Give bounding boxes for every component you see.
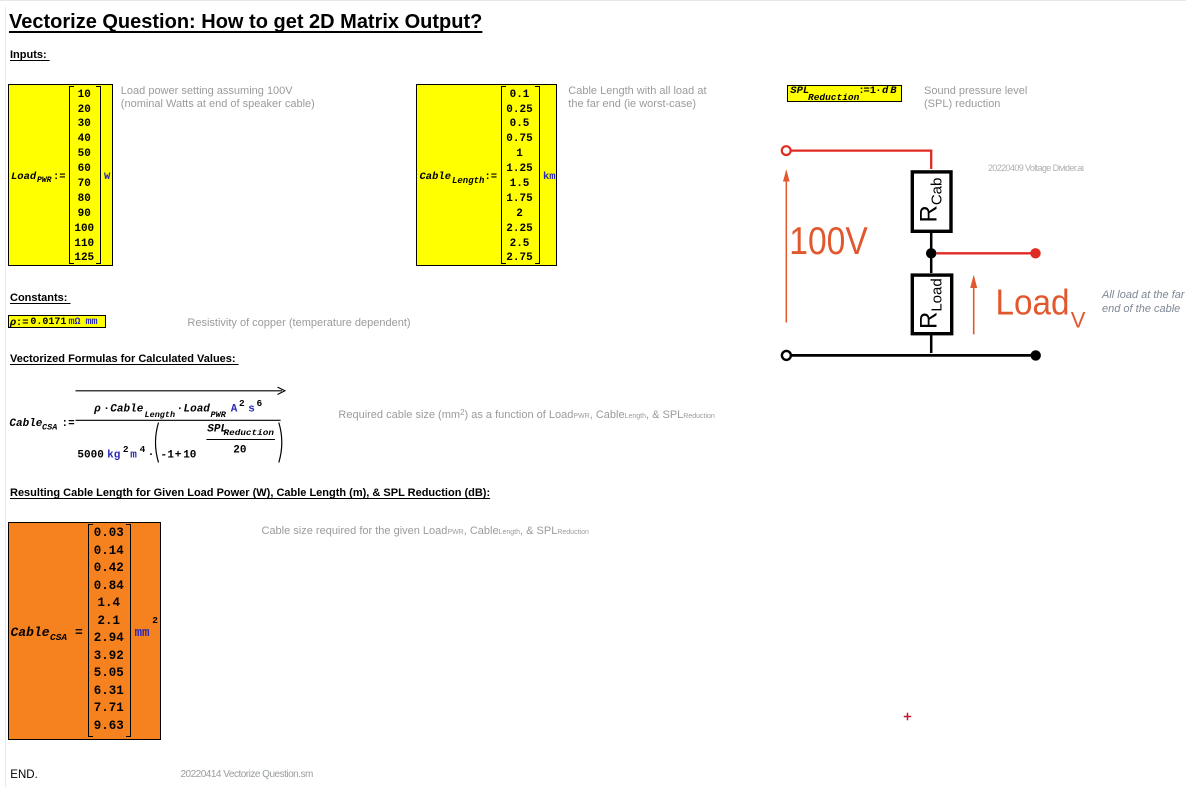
- svg-text:20: 20: [233, 445, 246, 457]
- svg-text:kg: kg: [107, 450, 120, 462]
- svg-text:2: 2: [239, 398, 245, 409]
- svg-text:·: ·: [177, 404, 184, 416]
- svg-text:·: ·: [148, 450, 155, 462]
- svg-text:·: ·: [103, 404, 110, 416]
- svg-text:10: 10: [183, 450, 196, 462]
- svg-text:Cable: Cable: [9, 418, 42, 430]
- svg-text:Cable: Cable: [110, 404, 143, 416]
- svg-text:m: m: [130, 450, 137, 462]
- svg-text:s: s: [248, 404, 255, 416]
- svg-text:4: 4: [140, 444, 146, 455]
- svg-text:2: 2: [123, 444, 129, 455]
- svg-text:V: V: [1071, 308, 1086, 333]
- svg-text:Reduction: Reduction: [224, 428, 275, 438]
- svg-text:20220409 Voltage Divider.ai: 20220409 Voltage Divider.ai: [988, 163, 1084, 173]
- svg-text:-: -: [161, 450, 168, 462]
- svg-text::=: :=: [62, 418, 76, 430]
- svg-text:Load: Load: [996, 281, 1070, 322]
- svg-text:PWR: PWR: [211, 410, 227, 420]
- svg-text:CSA: CSA: [42, 423, 57, 433]
- svg-text:100V: 100V: [789, 220, 868, 263]
- svg-text:A: A: [231, 404, 238, 416]
- svg-text:6: 6: [257, 398, 263, 409]
- svg-text:Load: Load: [184, 404, 211, 416]
- svg-text:+: +: [175, 450, 182, 462]
- svg-text:Length: Length: [145, 410, 176, 420]
- svg-text:ρ: ρ: [93, 404, 101, 416]
- svg-text:1: 1: [167, 450, 174, 462]
- svg-text:5000: 5000: [77, 450, 103, 462]
